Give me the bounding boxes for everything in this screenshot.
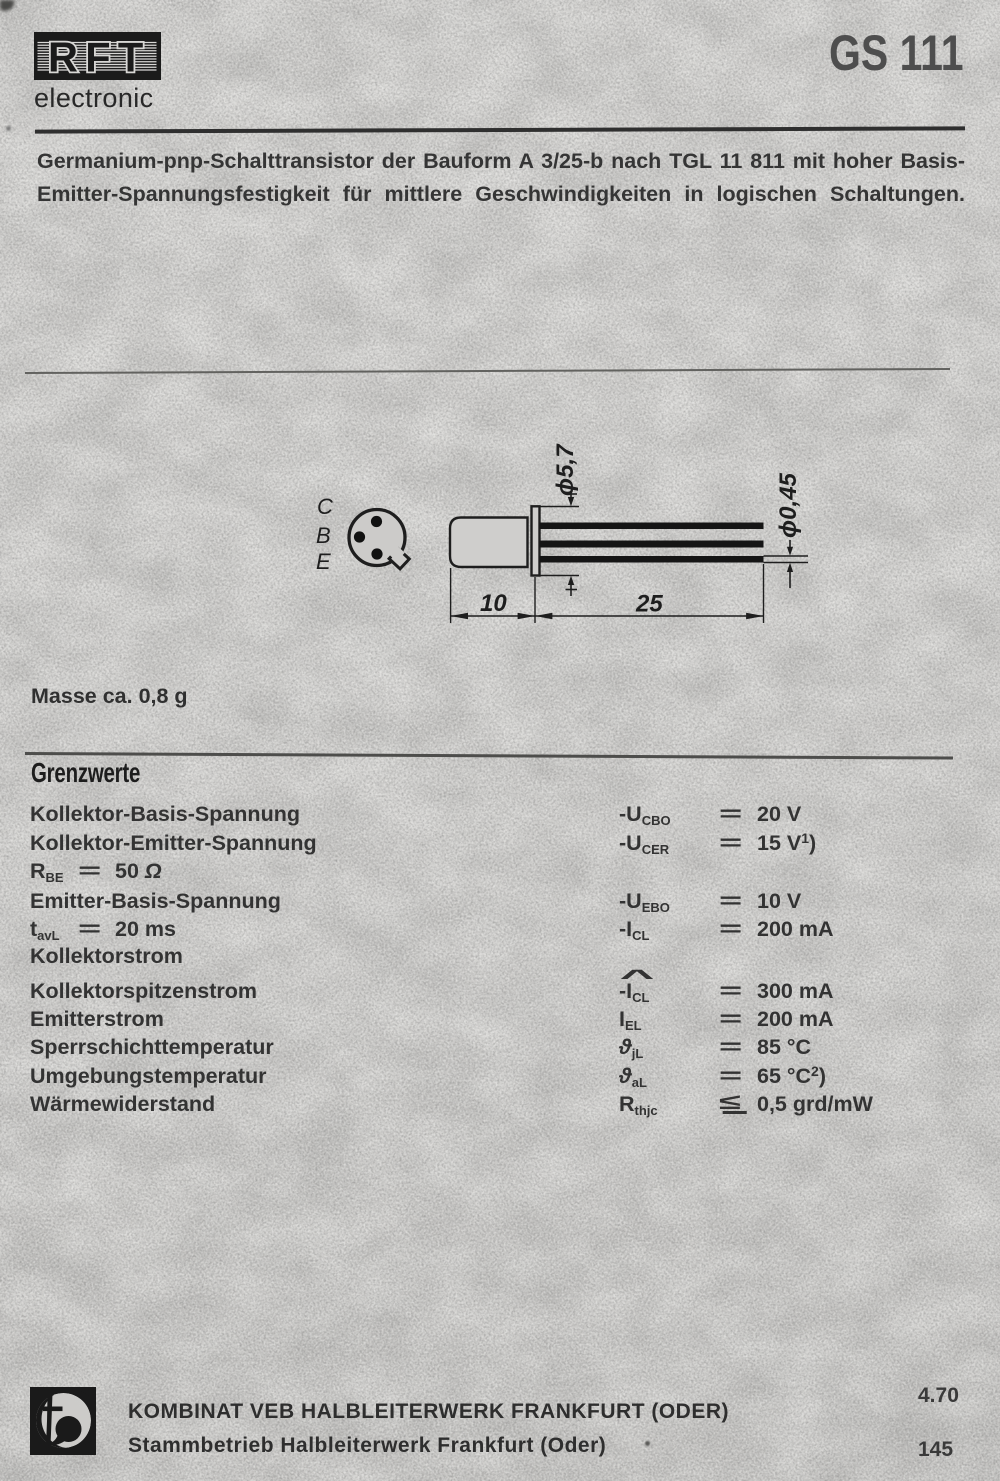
svg-text:B: B xyxy=(316,523,331,548)
svg-text:RFT: RFT xyxy=(48,34,151,81)
svg-text:10: 10 xyxy=(480,590,507,617)
svg-text:25: 25 xyxy=(635,591,663,618)
svg-text:ϕ0,45: ϕ0,45 xyxy=(775,472,802,538)
svg-text:ϕ5,7: ϕ5,7 xyxy=(552,443,579,496)
svg-text:C: C xyxy=(317,494,333,519)
svg-text:E: E xyxy=(316,549,331,574)
